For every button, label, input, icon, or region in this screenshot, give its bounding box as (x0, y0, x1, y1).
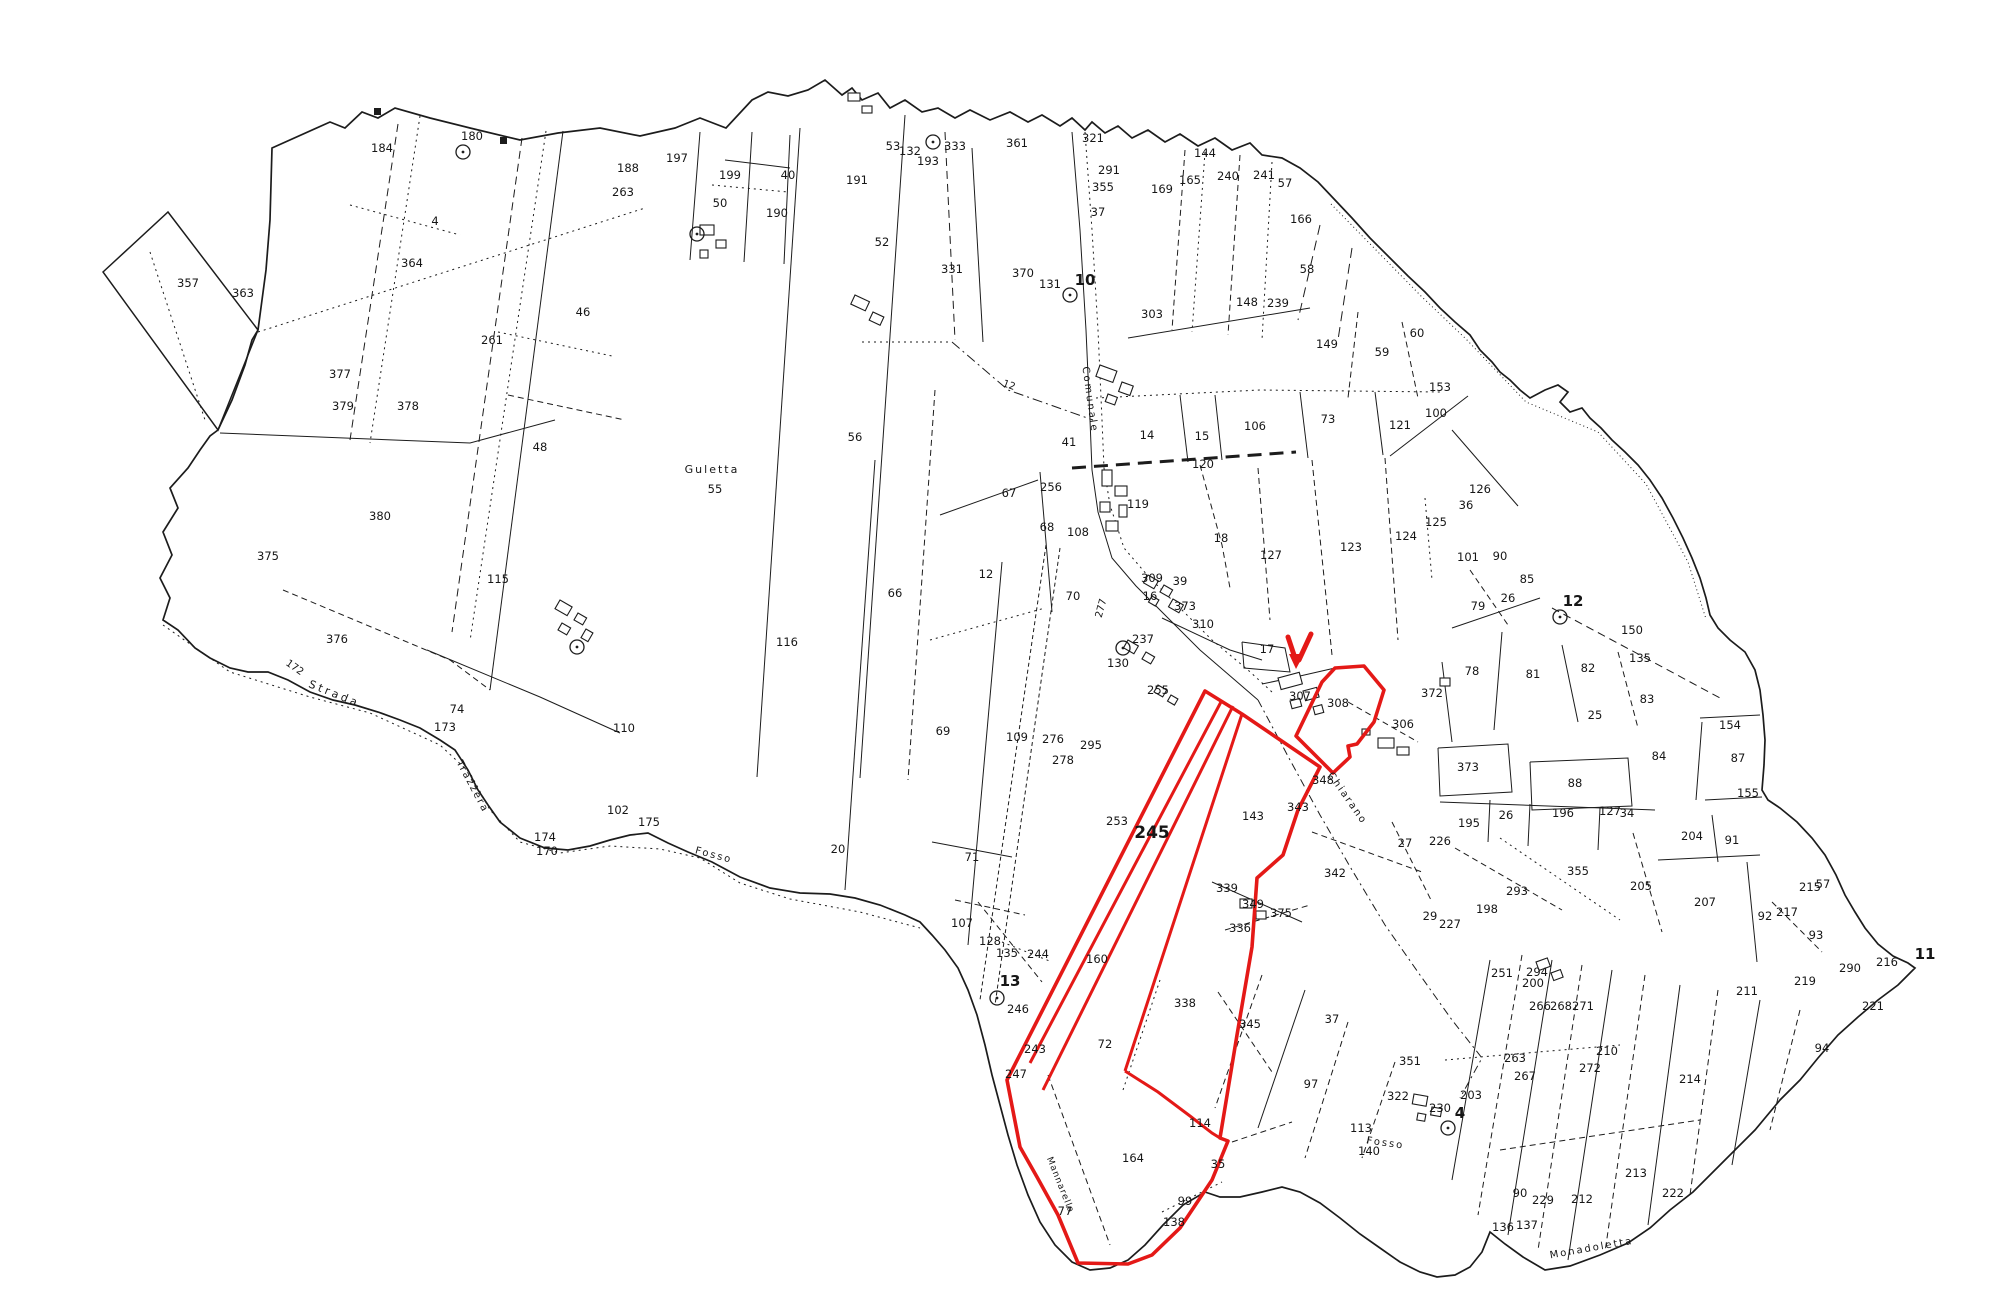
road-name-label: Guletta (685, 463, 740, 476)
building-footprint (1256, 911, 1266, 919)
parcel-number-label: 15 (1195, 429, 1210, 443)
parcel-number-label: 207 (1694, 895, 1716, 909)
parcel-line (968, 562, 1002, 945)
building-footprint (700, 250, 708, 258)
parcel-number-label: 127 (1260, 548, 1282, 562)
parcel-number-label: 79 (1471, 599, 1486, 613)
parcel-number-label: 90 (1513, 1186, 1528, 1200)
building-footprint (1551, 970, 1563, 981)
parcel-number-label: 144 (1194, 146, 1216, 160)
survey-point-label: 13 (1000, 972, 1021, 990)
parcel-number-label: 195 (1458, 816, 1480, 830)
parcel-number-label: 37 (1325, 1012, 1340, 1026)
parcel-number-label: 345 (1239, 1017, 1261, 1031)
parcel-number-label: 74 (450, 702, 465, 716)
parcel-number-label: 310 (1192, 617, 1214, 631)
parcel-number-label: 125 (1425, 515, 1447, 529)
building-footprint (1119, 505, 1127, 517)
parcel-number-label: 357 (177, 276, 199, 290)
parcel-number-label: 154 (1719, 718, 1741, 732)
parcel-number-label: 375 (1270, 906, 1292, 920)
parcel-number-label: 355 (1092, 180, 1114, 194)
survey-point-label: 11 (1915, 945, 1936, 963)
red-arrow-head-icon (1289, 654, 1304, 669)
parcel-number-label: 212 (1571, 1192, 1593, 1206)
parcel-number-label: 217 (1776, 905, 1798, 919)
parcel-number-label: 101 (1457, 550, 1479, 564)
survey-point-label: 10 (1075, 271, 1096, 289)
parcel-number-label: 138 (1163, 1215, 1185, 1229)
parcel-number-label: 78 (1465, 664, 1480, 678)
parcel-line (1568, 970, 1612, 1260)
parcel-line (1262, 162, 1272, 340)
parcel-number-label: 322 (1387, 1089, 1409, 1103)
parcel-number-label: 339 (1216, 881, 1238, 895)
parcel-line (1747, 862, 1757, 962)
building-footprint (1378, 738, 1394, 748)
parcel-number-label: 37 (1091, 205, 1106, 219)
parcel-number-label: 229 (1532, 1193, 1554, 1207)
parcel-labels: 3573633644462613773793781841802631881971… (177, 129, 1935, 1261)
building-footprints (555, 93, 1563, 1121)
parcel-line (1215, 395, 1222, 460)
parcel-number-label: 84 (1652, 749, 1667, 763)
map-outer-boundary (160, 80, 1915, 1277)
parcel-line (744, 132, 752, 262)
building-footprint (1142, 652, 1155, 664)
parcel-number-label: 295 (1080, 738, 1102, 752)
building-footprint (1412, 1094, 1428, 1106)
cadastral-map-svg: 3573633644462613773793781841802631881971… (0, 0, 2000, 1305)
parcel-number-label: 331 (941, 262, 963, 276)
building-footprint (1168, 695, 1178, 705)
parcel-number-label: 169 (1151, 182, 1173, 196)
parcel-number-label: 124 (1395, 529, 1417, 543)
parcel-number-label: 106 (1244, 419, 1266, 433)
parcel-number-label: 377 (329, 367, 351, 381)
parcel-number-label: 27 (1398, 836, 1413, 850)
road-name-label: Trazzera (453, 758, 490, 815)
parcel-line (498, 332, 612, 356)
parcel-number-label: 216 (1876, 955, 1898, 969)
parcel-number-label: 165 (1179, 173, 1201, 187)
building-footprint (869, 312, 884, 325)
parcel-number-label: 214 (1679, 1072, 1701, 1086)
parcel-number-label: 88 (1568, 776, 1583, 790)
parcel-number-label: 364 (401, 256, 423, 270)
parcel-number-label: 116 (776, 635, 798, 649)
parcel-number-label: 148 (1236, 295, 1258, 309)
building-footprint (851, 295, 870, 311)
parcel-number-label: 160 (1086, 952, 1108, 966)
parcel-number-label: 120 (1192, 457, 1214, 471)
parcel-number-label: 94 (1815, 1041, 1830, 1055)
parcel-number-label: 241 (1253, 168, 1275, 182)
parcel-number-label: 100 (1425, 406, 1447, 420)
parcel-number-label: 123 (1340, 540, 1362, 554)
parcel-number-label: 351 (1399, 1054, 1421, 1068)
parcel-number-label: 137 (1516, 1218, 1538, 1232)
parcel-line (452, 138, 522, 632)
parcel-number-label: 68 (1040, 520, 1055, 534)
parcel-number-label: 127 (1599, 804, 1621, 818)
parcel-number-label: 92 (1758, 909, 1773, 923)
parcel-line (955, 900, 1025, 915)
parcel-number-label: 83 (1640, 692, 1655, 706)
parcel-line (930, 608, 1045, 640)
parcel-line (845, 460, 875, 890)
parcel-number-label: 26 (1501, 591, 1516, 605)
parcel-line (1605, 975, 1645, 1252)
parcel-line (1200, 465, 1230, 588)
parcel-line (1338, 248, 1352, 340)
parcel-number-label: 240 (1217, 169, 1239, 183)
parcel-number-label: 291 (1098, 163, 1120, 177)
parcel-number-label: 271 (1572, 999, 1594, 1013)
parcel-number-label: 268 (1550, 999, 1572, 1013)
parcel-number-label: 173 (434, 720, 456, 734)
parcel-number-label: 60 (1410, 326, 1425, 340)
parcel-number-label: 198 (1476, 902, 1498, 916)
parcel-number-label: 57 (1278, 176, 1293, 190)
building-footprint (848, 93, 860, 101)
parcel-line (1455, 848, 1562, 910)
parcel-line (1258, 468, 1270, 620)
parcel-number-label: 81 (1526, 667, 1541, 681)
parcel-number-label: 333 (944, 139, 966, 153)
parcel-number-label: 219 (1794, 974, 1816, 988)
parcel-line (1562, 645, 1578, 722)
parcel-number-label: 200 (1522, 976, 1544, 990)
parcel-number-label: 343 (1287, 800, 1309, 814)
parcel-number-label: 109 (1006, 730, 1028, 744)
parcel-number-label: 256 (1040, 480, 1062, 494)
parcel-number-label: 57 (1816, 877, 1831, 891)
parcel-line (1180, 395, 1188, 462)
parcel-number-label: 93 (1809, 928, 1824, 942)
parcel-line (1300, 392, 1308, 458)
parcel-number-label: 73 (1321, 412, 1336, 426)
parcel-number-label: 230 (1429, 1101, 1451, 1115)
parcel-number-label: 71 (965, 850, 980, 864)
parcel-number-label: 91 (1725, 833, 1740, 847)
parcel-number-label: 130 (1107, 656, 1129, 670)
parcel-line (1331, 204, 1706, 619)
parcel-line (1096, 390, 1440, 398)
parcel-line (470, 131, 546, 641)
parcel-number-label: 380 (369, 509, 391, 523)
parcel-number-label: 4 (431, 214, 438, 228)
parcel-number-label: 143 (1242, 809, 1264, 823)
parcel-number-label: 115 (487, 572, 509, 586)
building-footprint (1160, 585, 1173, 597)
building-footprint (1397, 747, 1409, 755)
parcel-number-label: 321 (1082, 131, 1104, 145)
building-footprint (555, 600, 572, 616)
parcel-line (163, 625, 920, 928)
parcel-line (725, 160, 790, 168)
parcel-number-label: 196 (1552, 806, 1574, 820)
parcel-number-label: 107 (951, 916, 973, 930)
parcel-line (908, 390, 935, 780)
parcel-number-label: 58 (1300, 262, 1315, 276)
cadastral-map-canvas: 3573633644462613773793781841802631881971… (0, 0, 2000, 1305)
building-footprint (1115, 486, 1127, 496)
parcel-number-label: 70 (1066, 589, 1081, 603)
parcel-number-label: 290 (1839, 961, 1861, 975)
parcel-number-label: 191 (846, 173, 868, 187)
parcel-number-label: 48 (533, 440, 548, 454)
parcel-line (1658, 855, 1760, 860)
parcel-line (1494, 632, 1502, 730)
parcel-number-label: 113 (1350, 1121, 1372, 1135)
parcel-number-label: 135 (996, 946, 1018, 960)
parcel-number-label: 164 (1122, 1151, 1144, 1165)
parcel-number-label: 166 (1290, 212, 1312, 226)
parcel-number-label: 372 (1421, 686, 1443, 700)
parcel-line (1500, 838, 1620, 920)
parcel-line (1375, 392, 1383, 455)
parcel-number-label: 309 (1141, 571, 1163, 585)
parcel-line (1712, 815, 1718, 862)
parcel-number-label: 363 (232, 286, 254, 300)
survey-point-label: 4 (1455, 1104, 1465, 1122)
parcel-number-label: 276 (1042, 732, 1064, 746)
parcel-number-label: 308 (1327, 696, 1349, 710)
parcel-number-label: 203 (1460, 1088, 1482, 1102)
parcel-number-label: 278 (1052, 753, 1074, 767)
parcel-number-label: 211 (1736, 984, 1758, 998)
parcel-number-label: 155 (1737, 786, 1759, 800)
parcel-number-label: 379 (332, 399, 354, 413)
building-footprint (1417, 1113, 1426, 1121)
parcel-number-label: 210 (1596, 1044, 1618, 1058)
parcel-line (490, 131, 563, 690)
survey-point-label: 12 (1563, 592, 1584, 610)
parcel-line (757, 128, 800, 777)
parcel-number-label: 237 (1132, 632, 1154, 646)
survey-point-label: 245 (1134, 823, 1170, 843)
parcel-number-label: 188 (617, 161, 639, 175)
parcel-number-label: 18 (1214, 531, 1229, 545)
parcel-number-label: 136 (1492, 1220, 1514, 1234)
parcel-number-label: 34 (1620, 806, 1635, 820)
parcel-number-label: 153 (1429, 380, 1451, 394)
parcel-line (945, 132, 955, 340)
detached-parcel-block (103, 212, 258, 430)
parcel-number-label: 121 (1389, 418, 1411, 432)
parcel-number-label: 174 (534, 830, 556, 844)
parcel-number-label: 72 (1098, 1037, 1113, 1051)
parcel-number-label: 336 (1229, 921, 1251, 935)
parcel-number-label: 253 (1106, 814, 1128, 828)
parcel-line (1488, 800, 1490, 842)
parcel-line (940, 480, 1038, 515)
parcel-number-label: 303 (1141, 307, 1163, 321)
parcel-line (1442, 662, 1452, 742)
parcel-number-label: 12 (1001, 378, 1017, 393)
parcel-number-label: 246 (1007, 1002, 1029, 1016)
parcel-number-label: 131 (1039, 277, 1061, 291)
parcel-number-label: 247 (1005, 1067, 1027, 1081)
parcel-number-label: 226 (1429, 834, 1451, 848)
parcel-number-label: 376 (326, 632, 348, 646)
parcel-number-label: 20 (831, 842, 846, 856)
parcel-number-label: 35 (1211, 1157, 1226, 1171)
building-footprint (1106, 521, 1118, 531)
parcel-number-label: 197 (666, 151, 688, 165)
parcel-number-label: 170 (536, 844, 558, 858)
parcel-line (1258, 990, 1305, 1128)
building-footprint (716, 240, 726, 248)
parcel-number-label: 25 (1588, 708, 1603, 722)
parcel-number-label: 40 (781, 168, 796, 182)
parcel-line (1696, 722, 1702, 800)
parcel-number-label: 149 (1316, 337, 1338, 351)
parcel-number-label: 114 (1189, 1116, 1211, 1130)
parcel-number-label: 180 (461, 129, 483, 143)
highlighted-parcel-outline (1007, 634, 1384, 1264)
parcel-number-label: 205 (1630, 879, 1652, 893)
parcel-line (980, 545, 1046, 1000)
parcel-line (1392, 822, 1432, 902)
parcel-number-label: 110 (613, 721, 635, 735)
building-footprint (1102, 470, 1112, 486)
parcel-line (784, 135, 790, 264)
parcel-line (1258, 700, 1482, 1098)
parcel-number-label: 99 (1178, 1194, 1193, 1208)
parcel-line (1732, 1000, 1760, 1165)
building-footprint (1119, 382, 1134, 396)
parcel-line (995, 548, 1060, 1005)
parcel-number-label: 355 (1567, 864, 1589, 878)
parcel-number-label: 66 (888, 586, 903, 600)
parcel-number-label: 56 (848, 430, 863, 444)
parcel-number-label: 266 (1529, 999, 1551, 1013)
building-footprint (1278, 672, 1302, 689)
parcel-number-label: 293 (1506, 884, 1528, 898)
parcel-number-label: 128 (979, 934, 1001, 948)
parcel-number-label: 263 (612, 185, 634, 199)
parcel-number-label: 102 (607, 803, 629, 817)
parcel-number-label: 85 (1520, 572, 1535, 586)
parcel-number-label: 222 (1662, 1186, 1684, 1200)
parcel-number-label: 39 (1173, 574, 1188, 588)
parcel-number-label: 14 (1140, 428, 1155, 442)
parcel-number-label: 255 (1147, 683, 1169, 697)
building-footprint (558, 623, 571, 635)
building-footprint (574, 613, 587, 625)
parcel-number-label: 204 (1681, 829, 1703, 843)
parcel-number-label: 239 (1267, 296, 1289, 310)
building-footprint (1096, 365, 1117, 382)
parcel-line (1232, 1122, 1292, 1142)
parcel-number-label: 243 (1024, 1042, 1046, 1056)
parcel-line (1215, 975, 1262, 1108)
parcel-line (1218, 992, 1272, 1072)
parcel-number-label: 261 (481, 333, 503, 347)
parcel-number-label: 338 (1174, 996, 1196, 1010)
selected-parcel-308-outline (1296, 666, 1384, 773)
parcel-line (1072, 452, 1296, 468)
parcel-number-label: 108 (1067, 525, 1089, 539)
parcel-number-label: 52 (875, 235, 890, 249)
parcel-number-label: 59 (1375, 345, 1390, 359)
parcel-number-label: 263 (1504, 1051, 1526, 1065)
parcel-line (952, 342, 1093, 420)
parcel-line (220, 420, 555, 443)
boundary-mark-icon (374, 108, 381, 115)
parcel-number-label: 373 (1457, 760, 1479, 774)
road-name-label: Chiarano (1325, 770, 1369, 826)
parcel-number-label: 69 (936, 724, 951, 738)
parcel-number-label: 135 (1629, 651, 1651, 665)
parcel-line (370, 116, 420, 443)
parcel-number-label: 16 (1143, 589, 1158, 603)
building-footprint (581, 629, 593, 642)
parcel-line (1452, 598, 1540, 628)
parcel-number-label: 307 (1289, 689, 1311, 703)
building-footprint (1313, 705, 1324, 715)
parcel-number-label: 87 (1731, 751, 1746, 765)
building-footprint (862, 106, 872, 113)
parcel-line (1445, 1045, 1620, 1060)
parcel-line (350, 205, 460, 235)
parcel-number-label: 46 (576, 305, 591, 319)
parcel-number-label: 190 (766, 206, 788, 220)
parcel-number-label: 251 (1491, 966, 1513, 980)
parcel-line (1348, 312, 1358, 398)
parcel-line (860, 115, 905, 778)
parcel-line (283, 590, 490, 690)
parcel-number-label: 349 (1242, 897, 1264, 911)
parcel-number-label: 199 (719, 168, 741, 182)
survey-markers (374, 108, 1567, 1135)
parcel-number-label: 29 (1423, 909, 1438, 923)
parcel-line (350, 124, 398, 440)
parcel-number-label: 221 (1862, 999, 1884, 1013)
parcel-line (1770, 1010, 1800, 1130)
parcel-number-label: 126 (1469, 482, 1491, 496)
parcel-number-label: 373 (1174, 599, 1196, 613)
parcel-line (1385, 458, 1398, 640)
parcel-line (972, 148, 983, 342)
parcel-number-label: 342 (1324, 866, 1346, 880)
parcel-number-label: 55 (708, 482, 723, 496)
parcel-number-label: 90 (1493, 549, 1508, 563)
parcel-number-label: 97 (1304, 1077, 1319, 1091)
parcel-number-label: 41 (1062, 435, 1077, 449)
parcel-line (1500, 1120, 1700, 1150)
parcel-line (1528, 804, 1530, 846)
parcel-number-label: 370 (1012, 266, 1034, 280)
parcel-number-label: 50 (713, 196, 728, 210)
parcel-number-label: 277 (1094, 598, 1110, 619)
parcel-number-label: 213 (1625, 1166, 1647, 1180)
parcel-number-label: 375 (257, 549, 279, 563)
parcel-number-label: 244 (1027, 947, 1049, 961)
parcel-number-label: 175 (638, 815, 660, 829)
parcel-number-label: 267 (1514, 1069, 1536, 1083)
parcel-line (1048, 1075, 1110, 1245)
parcel-number-label: 12 (979, 567, 994, 581)
parcel-number-label: 272 (1579, 1061, 1601, 1075)
parcel-number-label: 17 (1260, 642, 1275, 656)
parcel-number-label: 26 (1499, 808, 1514, 822)
parcel-line (1690, 990, 1718, 1195)
parcel-number-label: 67 (1002, 486, 1017, 500)
parcel-number-label: 306 (1392, 717, 1414, 731)
